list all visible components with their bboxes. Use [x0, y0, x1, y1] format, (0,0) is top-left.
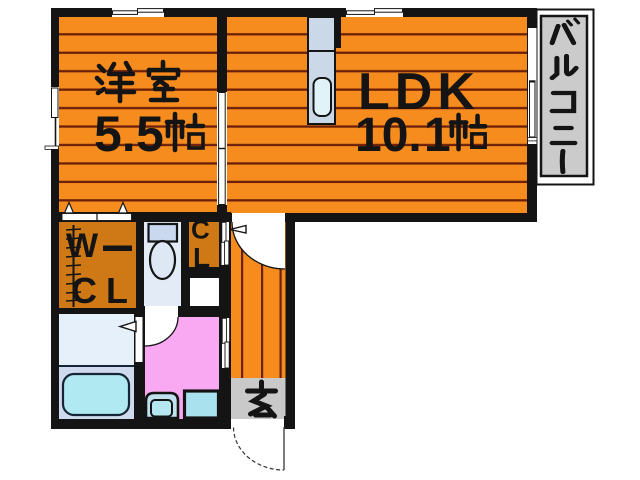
svg-text:W: W — [66, 227, 99, 265]
svg-text:1: 1 — [424, 109, 451, 162]
svg-text:5: 5 — [136, 106, 164, 162]
svg-text:10.: 10. — [355, 109, 422, 162]
svg-text:L: L — [106, 270, 128, 311]
svg-text:C: C — [71, 270, 97, 311]
svg-text:5.: 5. — [94, 106, 136, 162]
